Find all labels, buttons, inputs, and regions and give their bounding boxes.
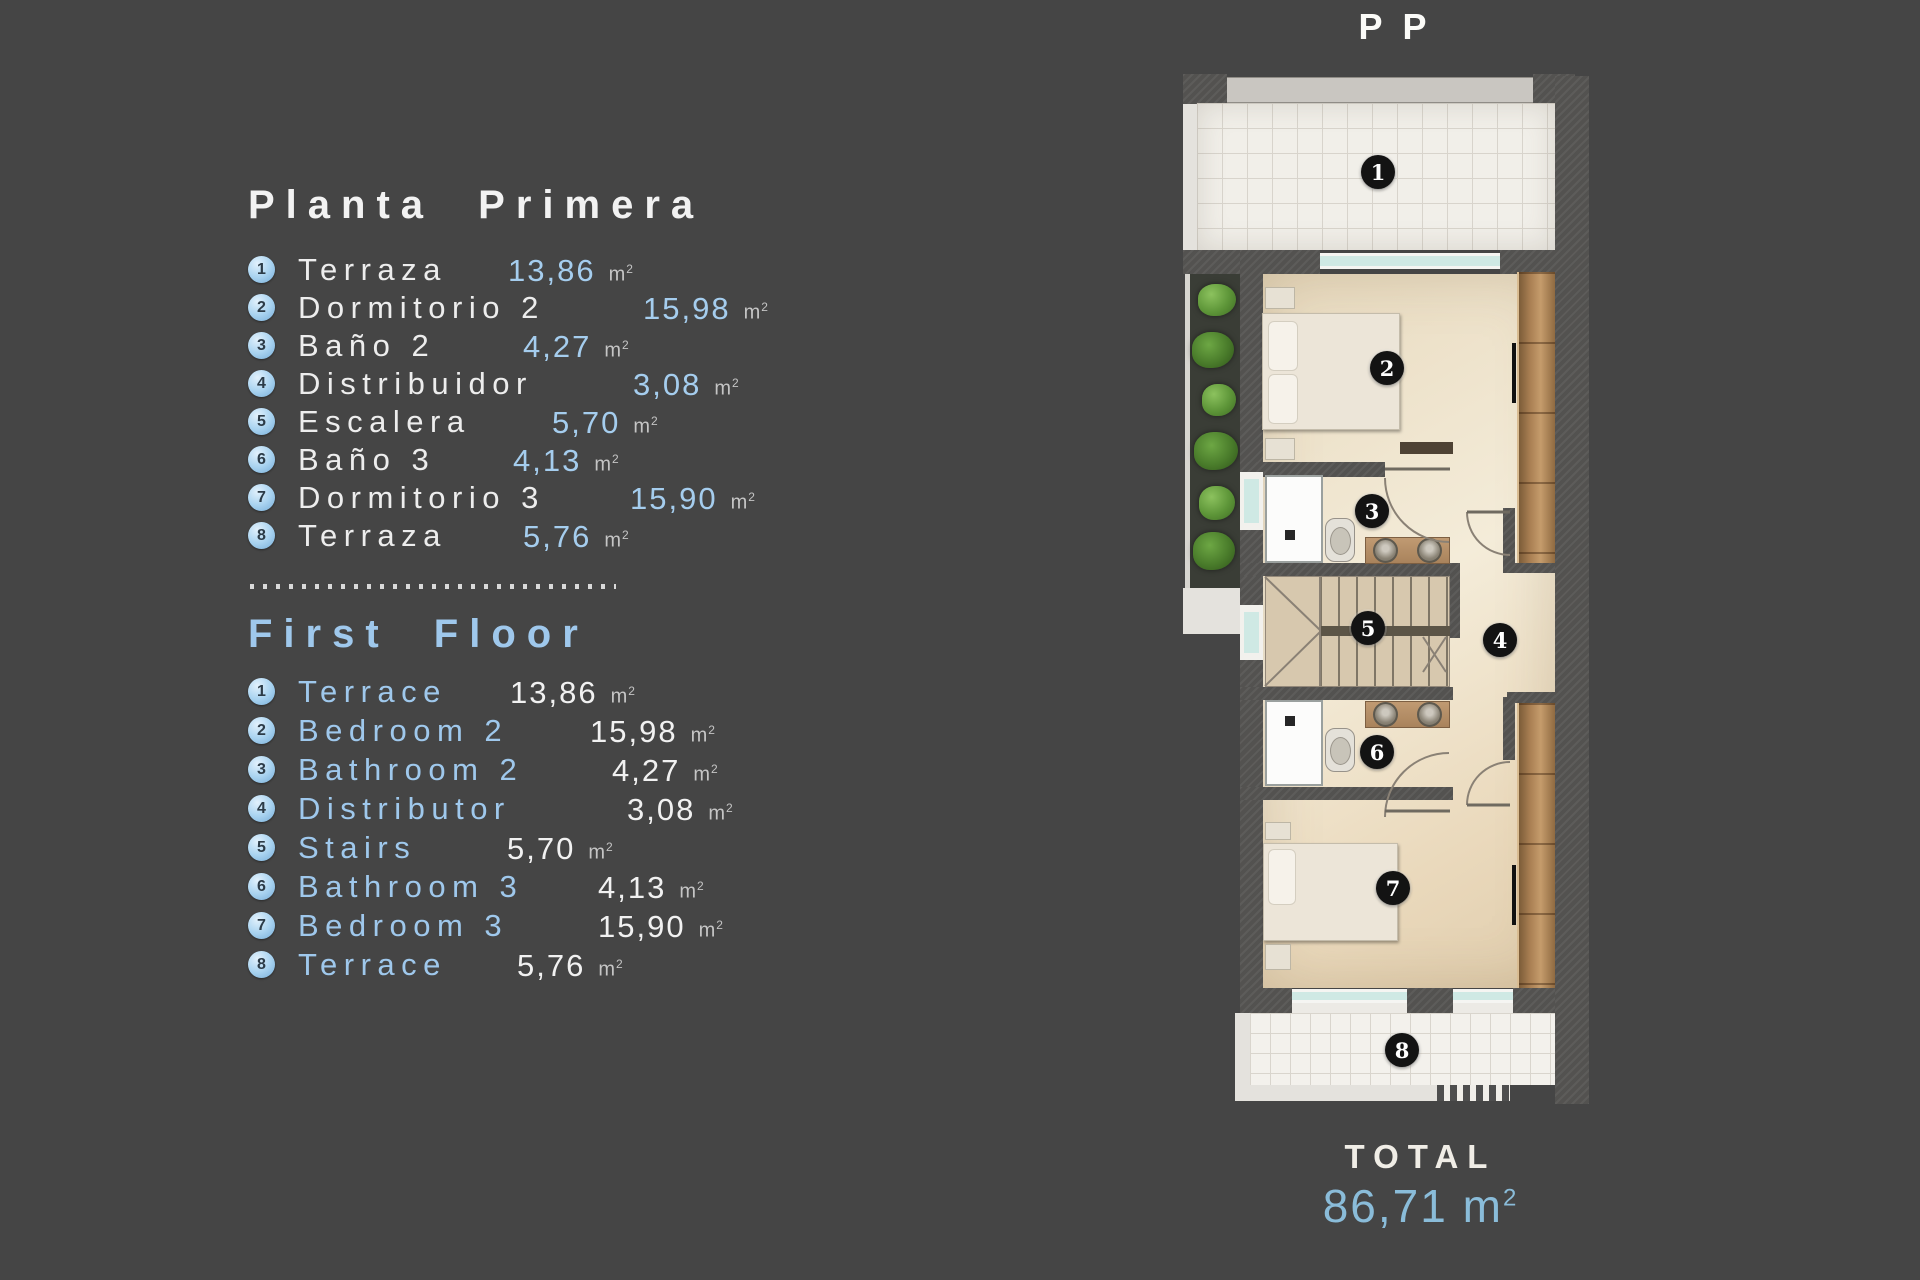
legend-title-spanish: Planta Primera: [248, 183, 704, 228]
area-unit: m2: [693, 751, 718, 794]
item-number-badge: 6: [248, 873, 275, 900]
item-number-badge: 6: [248, 446, 275, 473]
room-area: 5,70m2: [507, 829, 614, 872]
room-name: Bedroom 2: [298, 712, 508, 749]
item-number-badge: 3: [248, 332, 275, 359]
room-name: Baño 3: [298, 441, 435, 478]
legend-row: 7Bedroom 315,90m2: [248, 907, 848, 946]
room-area: 15,90m2: [598, 907, 724, 950]
item-number-badge: 7: [248, 484, 275, 511]
area-unit: m2: [691, 712, 716, 755]
floor-plan: 1 2 3 4 5 6 7 8: [1183, 60, 1590, 1122]
room-name: Distribuidor: [298, 365, 533, 402]
legend-row: 6Bathroom 34,13m2: [248, 868, 848, 907]
room-badge-3: 3: [1355, 494, 1389, 528]
room-area: 4,13m2: [598, 868, 705, 911]
room-area: 5,76m2: [517, 946, 624, 989]
total-label: TOTAL: [1217, 1138, 1624, 1176]
room-badge-2: 2: [1370, 351, 1404, 385]
legend-row: 8Terraza5,76m2: [248, 517, 848, 555]
area-unit: m2: [714, 365, 739, 408]
area-unit: m2: [744, 289, 769, 332]
room-name: Bedroom 3: [298, 907, 508, 944]
legend-row: 5Escalera5,70m2: [248, 403, 848, 441]
room-area: 5,76m2: [523, 517, 630, 560]
item-number-badge: 4: [248, 370, 275, 397]
room-badge-6: 6: [1360, 735, 1394, 769]
area-unit: m2: [611, 673, 636, 716]
room-name: Terrace: [298, 673, 447, 710]
room-area: 15,90m2: [630, 479, 756, 522]
room-name: Dormitorio 3: [298, 479, 545, 516]
room-badge-4: 4: [1483, 623, 1517, 657]
room-name: Terraza: [298, 251, 447, 288]
legend-row: 5Stairs5,70m2: [248, 829, 848, 868]
room-name: Bathroom 3: [298, 868, 523, 905]
item-number-badge: 1: [248, 256, 275, 283]
dotted-separator: [250, 584, 616, 589]
room-name: Stairs: [298, 829, 416, 866]
legend-row: 1Terraza13,86m2: [248, 251, 848, 289]
item-number-badge: 5: [248, 408, 275, 435]
item-number-badge: 5: [248, 834, 275, 861]
total-value: 86,71 m2: [1217, 1179, 1624, 1233]
item-number-badge: 2: [248, 294, 275, 321]
room-name: Baño 2: [298, 327, 435, 364]
area-unit: m2: [588, 829, 613, 872]
area-unit: m2: [708, 790, 733, 833]
item-number-badge: 2: [248, 717, 275, 744]
room-area: 4,27m2: [612, 751, 719, 794]
legend-row: 8Terrace5,76m2: [248, 946, 848, 985]
area-unit: m2: [633, 403, 658, 446]
room-area: 5,70m2: [552, 403, 659, 446]
legend-row: 1Terrace13,86m2: [248, 673, 848, 712]
legend-row: 4Distributor3,08m2: [248, 790, 848, 829]
legend-list-english: 1Terrace13,86m22Bedroom 215,98m23Bathroo…: [248, 673, 848, 985]
legend-title-english: First Floor: [248, 612, 589, 657]
total-area-block: TOTAL 86,71 m2: [1183, 1138, 1624, 1233]
room-area: 13,86m2: [510, 673, 636, 716]
room-name: Escalera: [298, 403, 471, 440]
room-badge-1: 1: [1361, 155, 1395, 189]
room-area: 13,86m2: [508, 251, 634, 294]
room-badge-8: 8: [1385, 1033, 1419, 1067]
room-name: Terraza: [298, 517, 447, 554]
item-number-badge: 7: [248, 912, 275, 939]
area-unit: m2: [679, 868, 704, 911]
legend-row: 3Bathroom 24,27m2: [248, 751, 848, 790]
room-area: 3,08m2: [633, 365, 740, 408]
legend-row: 7Dormitorio 315,90m2: [248, 479, 848, 517]
item-number-badge: 1: [248, 678, 275, 705]
area-unit: m2: [604, 327, 629, 370]
area-unit: m2: [699, 907, 724, 950]
legend-row: 6Baño 34,13m2: [248, 441, 848, 479]
legend-list-spanish: 1Terraza13,86m22Dormitorio 215,98m23Baño…: [248, 251, 848, 555]
room-area: 3,08m2: [627, 790, 734, 833]
legend-row: 4Distribuidor3,08m2: [248, 365, 848, 403]
floorplan-flyer: Planta Primera 1Terraza13,86m22Dormitori…: [0, 0, 1920, 1280]
room-name: Terrace: [298, 946, 447, 983]
item-number-badge: 8: [248, 522, 275, 549]
legend-row: 2Dormitorio 215,98m2: [248, 289, 848, 327]
room-area: 15,98m2: [590, 712, 716, 755]
room-name: Bathroom 2: [298, 751, 523, 788]
room-name: Distributor: [298, 790, 511, 827]
room-area: 4,13m2: [513, 441, 620, 484]
item-number-badge: 4: [248, 795, 275, 822]
plan-code-label: PP: [1183, 6, 1606, 48]
room-area: 4,27m2: [523, 327, 630, 370]
legend-row: 3Baño 24,27m2: [248, 327, 848, 365]
doors-and-stair-lines: [1183, 60, 1590, 1122]
area-unit: m2: [609, 251, 634, 294]
room-badge-7: 7: [1376, 871, 1410, 905]
area-unit: m2: [731, 479, 756, 522]
item-number-badge: 8: [248, 951, 275, 978]
area-unit: m2: [604, 517, 629, 560]
legend-row: 2Bedroom 215,98m2: [248, 712, 848, 751]
room-area: 15,98m2: [643, 289, 769, 332]
area-unit: m2: [598, 946, 623, 989]
item-number-badge: 3: [248, 756, 275, 783]
room-badge-5: 5: [1351, 611, 1385, 645]
room-name: Dormitorio 2: [298, 289, 545, 326]
area-unit: m2: [594, 441, 619, 484]
